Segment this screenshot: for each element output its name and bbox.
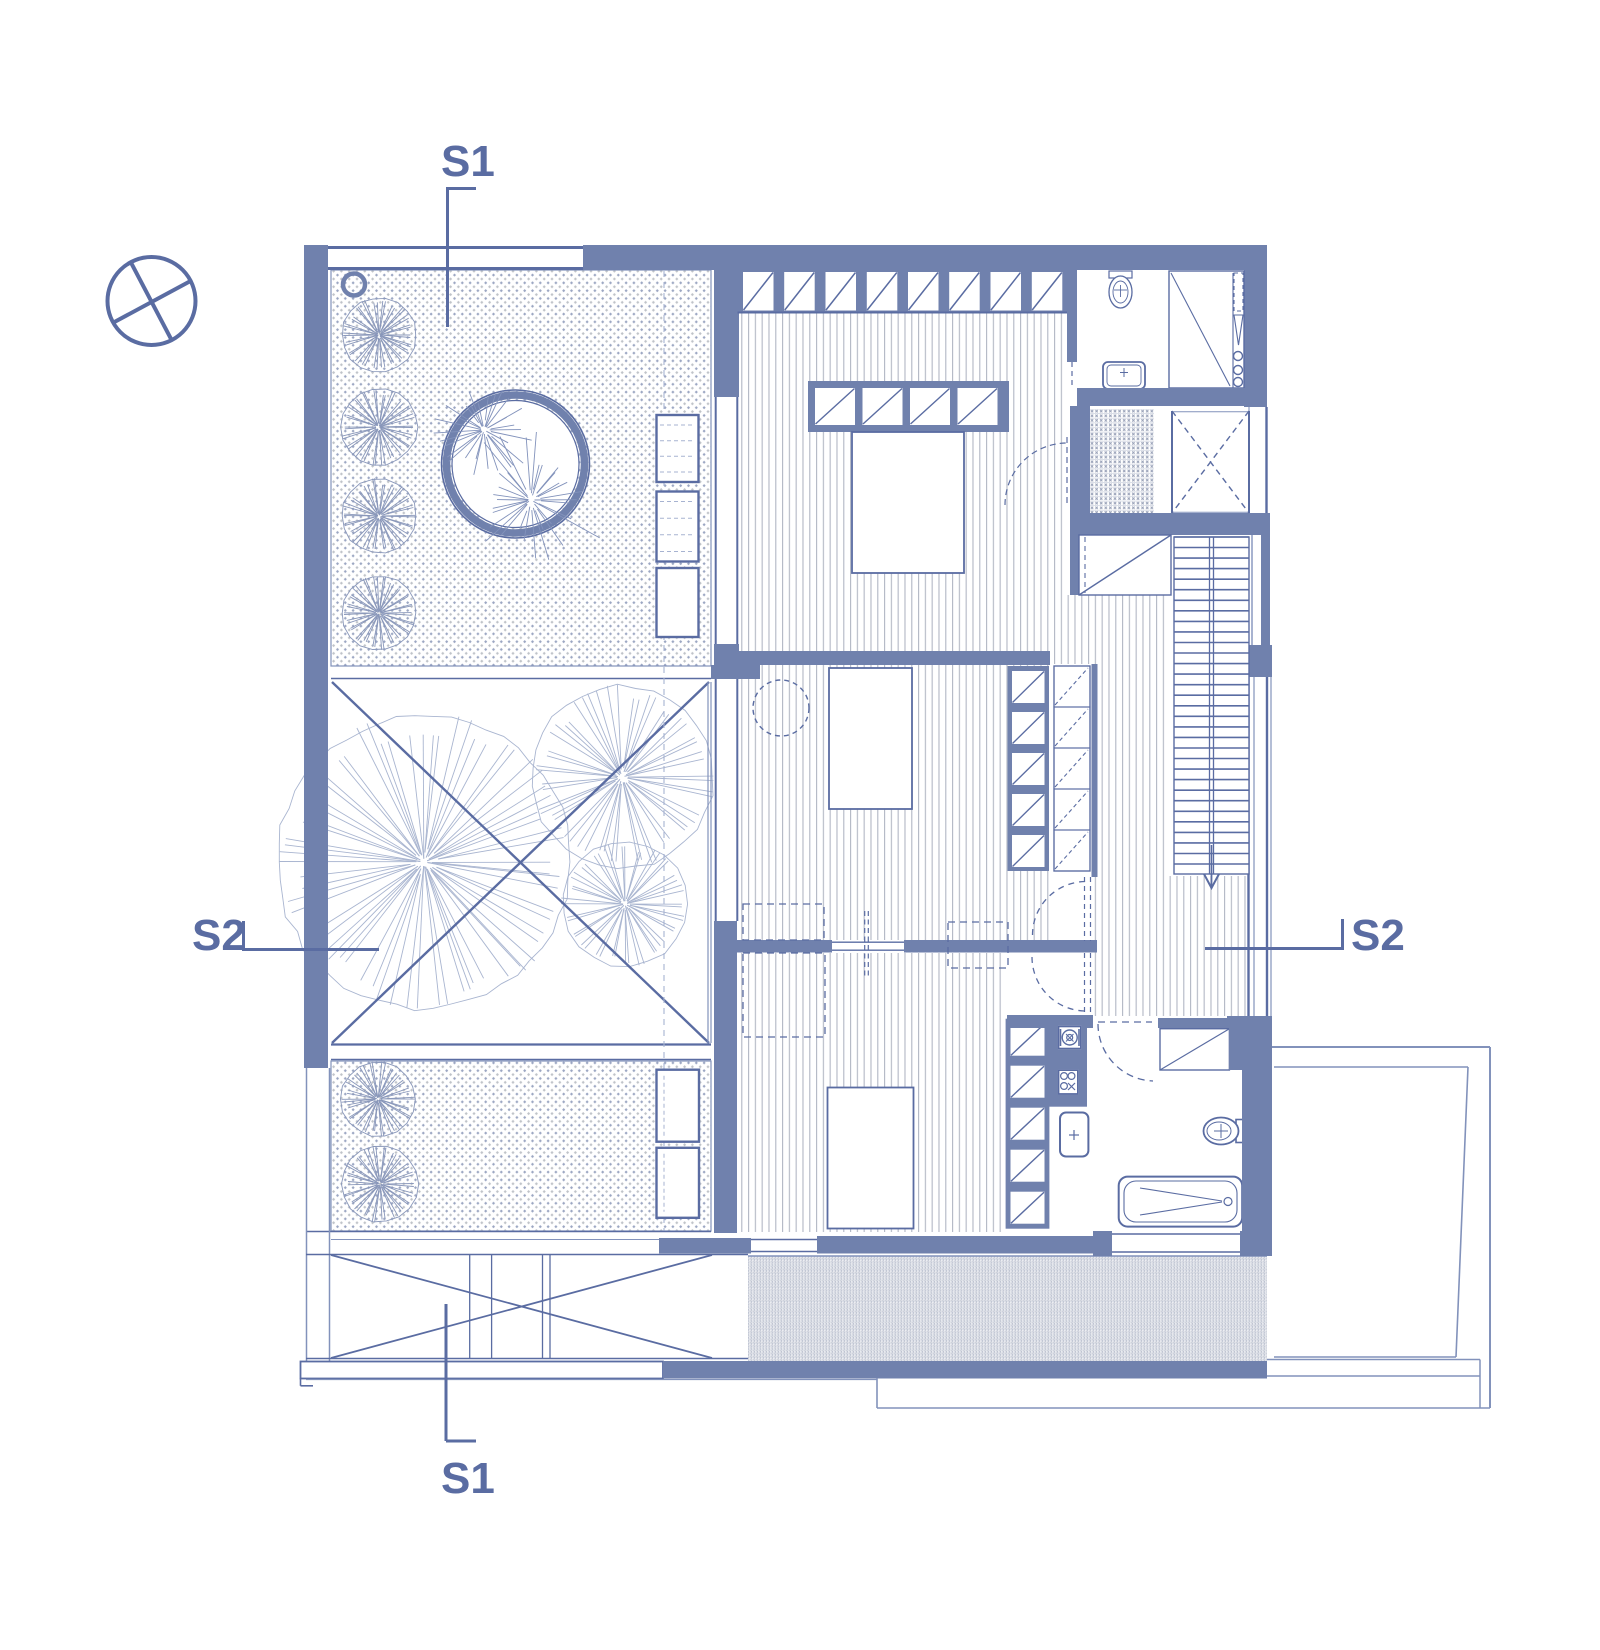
svg-text:S1: S1: [441, 137, 495, 186]
svg-text:S1: S1: [441, 1454, 495, 1503]
svg-text:S2: S2: [192, 911, 246, 960]
svg-text:S2: S2: [1351, 911, 1405, 960]
